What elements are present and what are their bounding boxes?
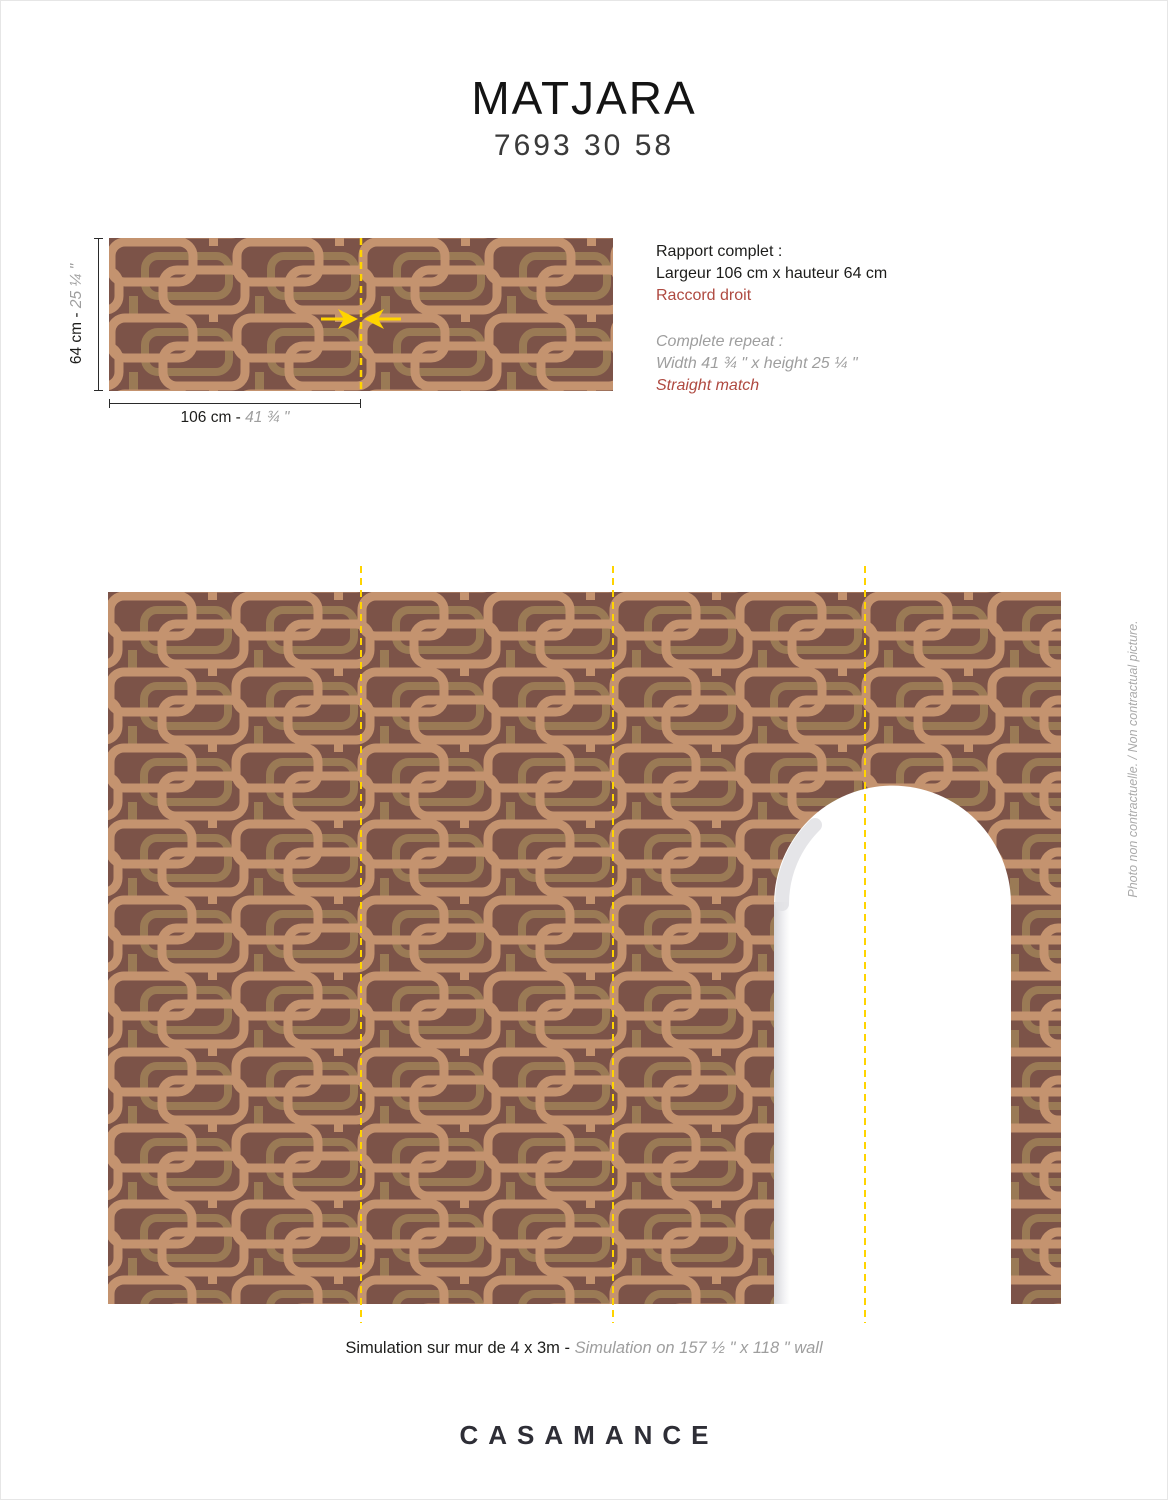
width-dimension-tick-left [109,399,110,408]
height-metric: 64 cm - [68,308,85,364]
page-title: MATJARA [1,71,1167,125]
repeat-match-en: Straight match [656,375,887,397]
strip-guide-line-3 [864,566,866,1323]
non-contractual-side-note: Photo non contractuelle. / Non contractu… [1126,620,1140,897]
swatch-pattern-svg [109,238,613,391]
repeat-match-fr: Raccord droit [656,285,887,307]
repeat-size-fr: Largeur 106 cm x hauteur 64 cm [656,263,887,285]
repeat-size-en: Width 41 ¾ " x height 25 ¼ " [656,353,887,375]
repeat-swatch [109,238,613,391]
arch-reveal-shading [774,902,790,1304]
height-dimension-tick-top [94,238,103,239]
strip-guide-line-2 [612,566,614,1323]
repeat-info-fr: Rapport complet : Largeur 106 cm x haute… [656,241,887,307]
width-imperial: 41 ¾ " [245,409,289,426]
simulation-caption: Simulation sur mur de 4 x 3m - Simulatio… [1,1339,1167,1358]
product-reference: 7693 30 58 [1,129,1167,163]
wall-pattern-svg [108,592,1061,1304]
height-dimension-line [98,238,99,391]
wallpaper-spec-sheet: MATJARA 7693 30 58 [0,0,1168,1500]
repeat-info-block: Rapport complet : Largeur 106 cm x haute… [656,241,887,397]
height-imperial: 25 ¼ " [68,264,85,308]
height-dimension-tick-bottom [94,390,103,391]
width-dimension-label: 106 cm - 41 ¾ " [181,409,290,427]
strip-guide-line-1 [360,566,362,1323]
simulation-caption-en: Simulation on 157 ½ " x 118 " wall [575,1339,823,1357]
repeat-info-en: Complete repeat : Width 41 ¾ " x height … [656,331,887,397]
brand-logo: CASAMANCE [1,1420,1167,1451]
height-dimension-label: 64 cm - 25 ¼ " [68,264,86,364]
arch-doorway [774,786,1011,1304]
width-dimension-line [109,403,361,404]
repeat-heading-en: Complete repeat : [656,331,887,353]
width-metric: 106 cm - [181,409,246,426]
simulation-caption-fr: Simulation sur mur de 4 x 3m - [345,1339,574,1357]
width-dimension-tick-right [360,399,361,408]
repeat-heading-fr: Rapport complet : [656,241,887,263]
wall-simulation [108,592,1061,1304]
